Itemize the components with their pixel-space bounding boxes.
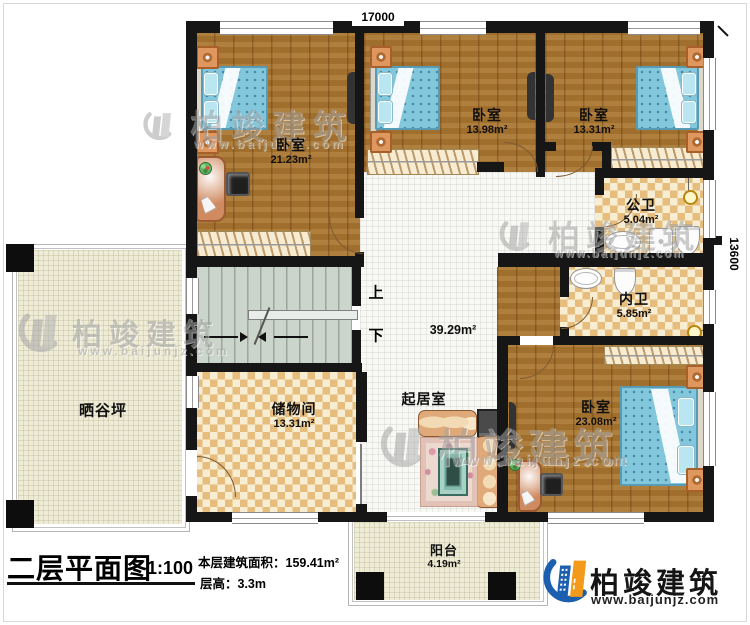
watermark: 柏竣建筑 www.baijunjz.com: [496, 208, 716, 268]
window: [186, 376, 199, 408]
room-label-public-bath: 公卫5.04m²: [624, 198, 659, 226]
watermark: 柏竣建筑 www.baijunjz.com: [14, 296, 264, 372]
dimension-top: 17000: [352, 10, 404, 26]
bed-bedroom-3: [636, 66, 704, 130]
living-area-value: 39.29m²: [430, 323, 477, 337]
window: [703, 392, 716, 466]
plan-title: 二层平面图: [7, 547, 152, 587]
window: [220, 21, 333, 35]
door-opening-terrace: [186, 450, 197, 496]
window: [703, 58, 716, 130]
ceiling-lamp-icon: [683, 190, 698, 205]
room-label-bedroom-1: 卧室21.23m²: [271, 138, 312, 166]
plant-icon: [199, 162, 212, 175]
floor-hall-lower: [497, 267, 560, 336]
plan-scale: 1:100: [147, 558, 193, 579]
floor-terrace: [18, 250, 182, 524]
computer-icon: [226, 172, 250, 196]
dimension-right: 13600: [725, 227, 741, 281]
column: [6, 244, 34, 272]
wardrobe-bedroom-1: [197, 231, 311, 258]
column: [6, 500, 34, 528]
room-label-terrace: 晒谷坪: [79, 404, 127, 421]
room-label-living: 起居室: [402, 392, 447, 408]
door-leaf-storage: [360, 444, 362, 504]
floor-plan-canvas: 17000 13600 柏竣建筑 www.baijunjz.com 柏竣建筑 w…: [0, 0, 750, 625]
title-underline: [7, 582, 195, 585]
stairs-up-label: 上: [368, 282, 383, 303]
brand-url: www.baijunjz.com: [591, 592, 719, 607]
floor-height-text: 层高：3.3m: [200, 573, 266, 592]
floor-area-text: 本层建筑面积：159.41m²: [198, 552, 339, 571]
room-label-private-bath: 内卫5.85m²: [617, 292, 652, 320]
room-label-balcony: 阳台 4.19m²: [427, 544, 460, 570]
watermark: 柏竣建筑 www.baijunjz.com: [140, 96, 370, 158]
bed-bedroom-2: [370, 66, 440, 130]
room-label-bedroom-2: 卧室13.98m²: [467, 108, 508, 136]
sink-icon: [570, 268, 602, 289]
window: [232, 512, 318, 524]
tv-icon: [546, 74, 554, 122]
column: [356, 572, 384, 600]
stair-direction-line-right: [274, 336, 308, 338]
tv-icon: [527, 72, 535, 120]
window: [703, 290, 716, 324]
brand-logo-icon: [496, 208, 530, 266]
window: [548, 512, 644, 524]
nightstand: [370, 131, 392, 153]
room-label-storage: 储物间13.31m²: [272, 402, 317, 430]
wardrobe-bedroom-4: [604, 346, 705, 365]
brand-logo-icon: [140, 98, 172, 156]
window: [420, 21, 486, 35]
room-label-bedroom-4: 卧室23.08m²: [576, 400, 617, 428]
nightstand: [196, 46, 219, 69]
nightstand: [370, 46, 392, 68]
brand-logo-icon: [376, 408, 422, 488]
column: [488, 572, 516, 600]
brand-logo-icon: [538, 554, 588, 610]
window: [628, 21, 700, 35]
brand-logo-icon: [14, 296, 58, 372]
stairs-down-label: 下: [368, 325, 383, 346]
room-label-bedroom-3: 卧室13.31m²: [574, 108, 615, 136]
